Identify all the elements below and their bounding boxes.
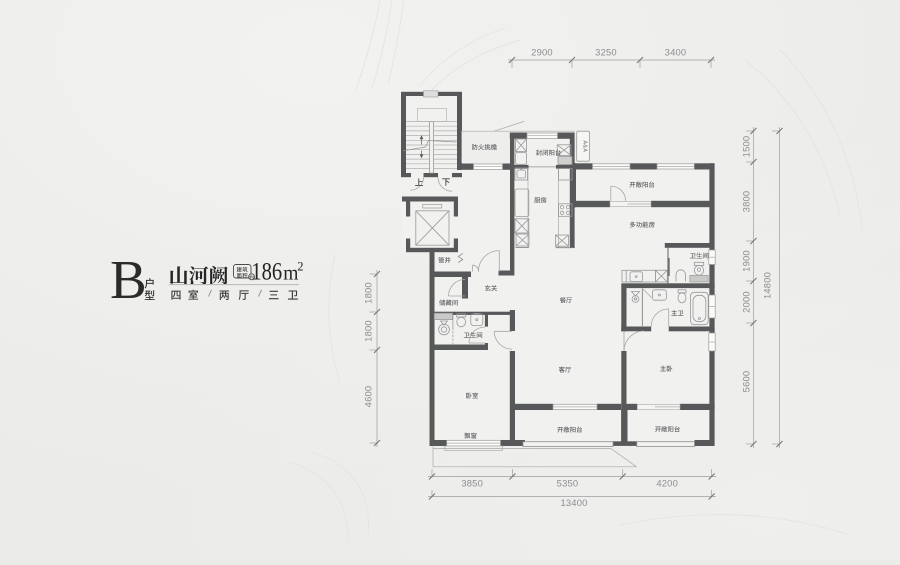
svg-text:B: B bbox=[110, 235, 147, 314]
svg-text:14800: 14800 bbox=[762, 272, 773, 299]
svg-text:4200: 4200 bbox=[656, 478, 678, 489]
svg-text:卫生间: 卫生间 bbox=[690, 251, 709, 260]
svg-text:室: 室 bbox=[188, 287, 199, 303]
svg-text:2900: 2900 bbox=[531, 47, 553, 58]
svg-text:4600: 4600 bbox=[363, 386, 374, 408]
svg-text:3850: 3850 bbox=[461, 478, 483, 489]
svg-text:飘窗: 飘窗 bbox=[464, 431, 477, 440]
svg-text:5350: 5350 bbox=[557, 478, 579, 489]
svg-text:开敞阳台: 开敞阳台 bbox=[557, 425, 583, 434]
svg-text:186: 186 bbox=[251, 251, 282, 287]
svg-text:主卫: 主卫 bbox=[671, 308, 684, 317]
svg-text:2: 2 bbox=[297, 257, 303, 275]
svg-text:3400: 3400 bbox=[665, 47, 687, 58]
svg-text:多功能房: 多功能房 bbox=[629, 220, 655, 229]
svg-text:1800: 1800 bbox=[363, 282, 374, 304]
svg-text:1800: 1800 bbox=[363, 320, 374, 342]
svg-text:A&A: A&A bbox=[581, 140, 587, 152]
svg-text:防火挑檐: 防火挑檐 bbox=[472, 143, 498, 152]
svg-text:储藏间: 储藏间 bbox=[439, 298, 458, 307]
svg-text:1900: 1900 bbox=[741, 250, 752, 272]
svg-text:厅: 厅 bbox=[238, 287, 249, 303]
svg-text:型: 型 bbox=[144, 287, 155, 303]
svg-text:管井: 管井 bbox=[438, 255, 451, 264]
svg-text:卫生间: 卫生间 bbox=[464, 330, 483, 339]
svg-text:客厅: 客厅 bbox=[559, 365, 572, 374]
svg-text:两: 两 bbox=[219, 287, 230, 303]
svg-text:卫: 卫 bbox=[287, 287, 298, 303]
svg-text:3800: 3800 bbox=[741, 191, 752, 213]
svg-text:13400: 13400 bbox=[560, 497, 587, 508]
svg-text:主卧: 主卧 bbox=[660, 364, 673, 373]
svg-text:1500: 1500 bbox=[741, 136, 752, 158]
svg-text:三: 三 bbox=[268, 287, 279, 303]
svg-text:5600: 5600 bbox=[741, 371, 752, 393]
svg-text:开敞阳台: 开敞阳台 bbox=[655, 424, 681, 433]
svg-text:卧室: 卧室 bbox=[466, 391, 479, 400]
svg-text:玄关: 玄关 bbox=[485, 283, 498, 292]
svg-text:封闭阳台: 封闭阳台 bbox=[536, 148, 562, 157]
svg-text:m: m bbox=[283, 257, 298, 285]
svg-text:厨房: 厨房 bbox=[534, 196, 547, 205]
svg-text:下: 下 bbox=[442, 176, 451, 188]
svg-text:2000: 2000 bbox=[741, 291, 752, 313]
svg-text:开敞阳台: 开敞阳台 bbox=[629, 180, 655, 189]
svg-text:四: 四 bbox=[171, 287, 182, 303]
svg-text:餐厅: 餐厅 bbox=[560, 295, 573, 304]
svg-text:上: 上 bbox=[415, 176, 424, 188]
svg-text:3250: 3250 bbox=[595, 47, 617, 58]
svg-text:面积: 面积 bbox=[237, 271, 249, 279]
